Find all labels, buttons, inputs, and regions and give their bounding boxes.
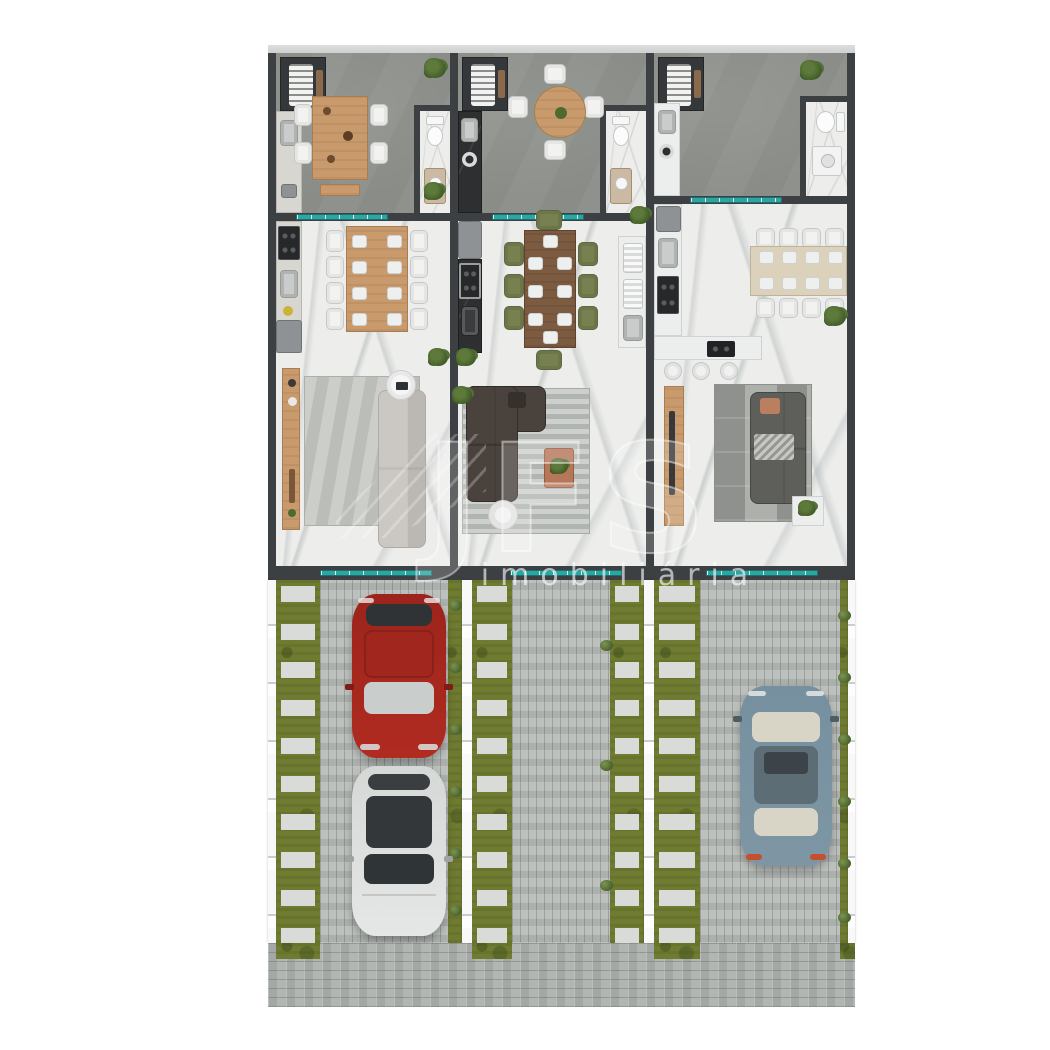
plant bbox=[452, 386, 472, 404]
bar-stool bbox=[664, 362, 682, 380]
car-taillight bbox=[810, 854, 826, 860]
dining-chair bbox=[410, 230, 428, 252]
bush bbox=[838, 796, 851, 807]
unit-2-barbecue bbox=[462, 57, 508, 111]
sofa-blanket bbox=[754, 434, 794, 460]
car-windshield bbox=[364, 682, 434, 714]
table-centerpiece bbox=[555, 107, 567, 119]
car-taillight bbox=[746, 854, 762, 860]
car-roof bbox=[364, 630, 434, 678]
blue-car bbox=[740, 686, 832, 866]
grill-utensils bbox=[694, 70, 701, 98]
unit-3-patio-basin bbox=[659, 144, 674, 159]
car-windshield bbox=[364, 854, 434, 884]
unit-1-kitchen-cabinet bbox=[276, 320, 302, 353]
dining-chair bbox=[326, 282, 344, 304]
bar-stool bbox=[720, 362, 738, 380]
dining-chair-olive bbox=[536, 350, 562, 370]
stepping-stones bbox=[659, 586, 695, 943]
dish-rack bbox=[623, 279, 643, 309]
stepping-stones bbox=[477, 586, 507, 943]
unit-2-patio-round-table bbox=[534, 86, 586, 138]
car-sunroof bbox=[764, 752, 808, 774]
bar-stool bbox=[692, 362, 710, 380]
vanity-sink bbox=[821, 154, 835, 168]
car-rear-window bbox=[368, 774, 430, 790]
curb-grass bbox=[840, 943, 855, 959]
unit-3-patio-sink bbox=[658, 110, 676, 134]
car-mirror bbox=[444, 856, 453, 862]
car-windshield bbox=[752, 712, 820, 742]
grill-icon bbox=[289, 64, 313, 106]
curb-grass bbox=[654, 943, 700, 959]
bush bbox=[600, 640, 613, 651]
car-mirror bbox=[733, 716, 742, 722]
patio-chair bbox=[544, 140, 566, 160]
red-car bbox=[352, 594, 446, 758]
unit-2-patio-basin bbox=[462, 152, 477, 167]
car-mirror bbox=[345, 856, 354, 862]
car-headlight bbox=[806, 691, 824, 696]
curb-grass bbox=[472, 943, 512, 959]
kitchen-accessory bbox=[283, 306, 293, 316]
plant bbox=[424, 182, 444, 200]
unit-2-driveway bbox=[512, 580, 610, 943]
bath-vanity bbox=[610, 168, 632, 204]
unit-1-patio-appliance bbox=[281, 184, 297, 198]
sofa-pillow bbox=[508, 392, 526, 408]
rear-wall-cap bbox=[268, 45, 855, 53]
unit-2-garden-strip bbox=[472, 580, 512, 943]
unit-3-garden-strip bbox=[654, 580, 700, 943]
dish-rack bbox=[623, 243, 643, 273]
dining-chair-olive bbox=[504, 242, 524, 266]
fence-right bbox=[848, 580, 855, 943]
unit-1-patio-table bbox=[312, 96, 368, 180]
unit-2-kitchen-cabinet bbox=[458, 221, 482, 259]
plant bbox=[824, 306, 846, 326]
dining-chair bbox=[410, 282, 428, 304]
unit-3-kitchen-sink bbox=[658, 238, 678, 268]
grill-utensils bbox=[316, 70, 323, 98]
car-rear-window bbox=[366, 604, 432, 626]
plant bbox=[798, 500, 816, 516]
unit-2-garden-strip-right bbox=[610, 580, 644, 943]
fence-divider bbox=[644, 580, 654, 943]
car-mirror bbox=[830, 716, 839, 722]
unit-1-side-table bbox=[386, 370, 416, 400]
toilet-bowl bbox=[816, 111, 835, 133]
hedge-strip-right bbox=[840, 580, 848, 943]
bush bbox=[449, 600, 462, 611]
patio-chair bbox=[294, 104, 312, 126]
fence-divider bbox=[462, 580, 472, 943]
bush bbox=[600, 880, 613, 891]
dining-chair-olive bbox=[536, 210, 562, 230]
watermark-label: imobiliária bbox=[470, 558, 770, 593]
unit-1-patio-glass-door bbox=[296, 214, 388, 220]
grill-utensils bbox=[498, 70, 505, 98]
plant bbox=[456, 348, 476, 366]
dining-chair bbox=[779, 228, 798, 248]
dining-chair-olive bbox=[578, 242, 598, 266]
unit-1-cooktop bbox=[278, 226, 300, 260]
vanity-sink bbox=[615, 177, 628, 190]
car-taillight bbox=[424, 598, 440, 603]
unit-2-side-sink bbox=[623, 315, 643, 341]
dining-chair bbox=[802, 298, 821, 318]
toilet bbox=[426, 116, 444, 125]
bush bbox=[449, 786, 462, 797]
unit-2-side-counter bbox=[618, 236, 646, 348]
car-glass-roof bbox=[366, 796, 432, 848]
unit-1-sideboard bbox=[282, 368, 300, 530]
grill-icon bbox=[667, 64, 691, 106]
bush bbox=[838, 672, 851, 683]
toilet bbox=[836, 112, 845, 132]
unit-1-garden-strip bbox=[276, 580, 320, 943]
car-rear-window bbox=[754, 808, 818, 836]
floor-plan-rendering: JFS imobiliária bbox=[0, 0, 1050, 1050]
car-mirror bbox=[444, 684, 453, 690]
bush bbox=[838, 912, 851, 923]
unit-3-patio-glass-door bbox=[690, 197, 782, 203]
dining-chair bbox=[410, 308, 428, 330]
white-car bbox=[352, 766, 446, 936]
dining-chair bbox=[326, 308, 344, 330]
patio-chair bbox=[370, 142, 388, 164]
patio-chair bbox=[370, 104, 388, 126]
unit-3-dining-table bbox=[750, 246, 847, 296]
dining-chair bbox=[410, 256, 428, 278]
unit-1-dining-table bbox=[346, 226, 408, 332]
patio-chair bbox=[584, 96, 604, 118]
stepping-stones bbox=[281, 586, 315, 943]
bush bbox=[838, 610, 851, 621]
curb-grass bbox=[276, 943, 320, 959]
car-roof bbox=[754, 746, 818, 804]
dining-chair bbox=[756, 228, 775, 248]
bush bbox=[838, 858, 851, 869]
unit-3-island bbox=[654, 336, 762, 360]
dining-chair-olive bbox=[578, 306, 598, 330]
toilet-bowl bbox=[613, 126, 629, 146]
sofa-pillow bbox=[760, 398, 780, 414]
bath-vanity bbox=[812, 146, 842, 176]
car-headlight bbox=[418, 744, 438, 750]
sidewalk bbox=[268, 943, 855, 1007]
car-taillight bbox=[358, 598, 374, 603]
bush bbox=[449, 905, 462, 916]
fence-left bbox=[268, 580, 276, 943]
unit-2-dining-table bbox=[524, 230, 576, 348]
stepping-stones bbox=[615, 586, 639, 943]
patio-bench bbox=[320, 184, 360, 196]
unit-2-patio-sink bbox=[461, 118, 478, 142]
dining-chair-olive bbox=[504, 274, 524, 298]
plant bbox=[630, 206, 650, 224]
dining-chair bbox=[326, 256, 344, 278]
bush bbox=[449, 662, 462, 673]
unit-3-cooktop bbox=[657, 276, 679, 314]
island-cooktop bbox=[707, 341, 735, 357]
plant bbox=[800, 60, 822, 80]
dining-chair bbox=[779, 298, 798, 318]
plant bbox=[424, 58, 446, 78]
bush bbox=[600, 760, 613, 771]
dining-chair bbox=[756, 298, 775, 318]
patio-chair bbox=[294, 142, 312, 164]
dining-chair bbox=[326, 230, 344, 252]
unit-3-kitchen-cabinet bbox=[656, 206, 681, 232]
car-headlight bbox=[748, 691, 766, 696]
toilet-bowl bbox=[427, 126, 443, 146]
patio-chair bbox=[508, 96, 528, 118]
bush bbox=[449, 724, 462, 735]
unit-1-kitchen-sink bbox=[280, 270, 298, 298]
unit-2-kitchen-sink bbox=[461, 306, 479, 336]
hedge-strip bbox=[448, 580, 462, 943]
patio-chair bbox=[544, 64, 566, 84]
dining-chair bbox=[825, 228, 844, 248]
dining-chair-olive bbox=[578, 274, 598, 298]
grill-icon bbox=[471, 64, 495, 106]
unit-2-cooktop bbox=[459, 263, 481, 299]
car-hood-seam bbox=[362, 894, 436, 896]
dining-chair-olive bbox=[504, 306, 524, 330]
toilet bbox=[612, 116, 630, 125]
plant bbox=[428, 348, 448, 366]
car-headlight bbox=[360, 744, 380, 750]
car-mirror bbox=[345, 684, 354, 690]
dining-chair bbox=[802, 228, 821, 248]
bush bbox=[838, 734, 851, 745]
